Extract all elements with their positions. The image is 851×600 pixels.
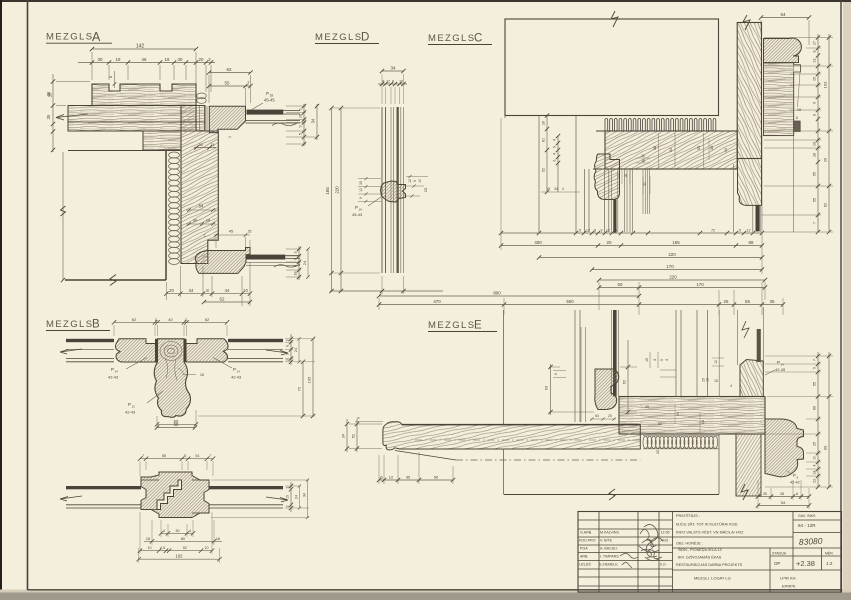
svg-text:12: 12 <box>606 229 610 233</box>
svg-text:30: 30 <box>98 57 103 62</box>
svg-text:62: 62 <box>622 379 627 384</box>
svg-text:C: C <box>474 33 482 45</box>
svg-text:V. BITE: V. BITE <box>600 539 613 543</box>
svg-text:34: 34 <box>724 148 728 152</box>
svg-text:24: 24 <box>295 495 299 499</box>
svg-text:55: 55 <box>813 382 817 386</box>
svg-text:34: 34 <box>189 288 194 293</box>
svg-text:34: 34 <box>676 412 680 416</box>
svg-text:103: 103 <box>823 81 828 88</box>
svg-text:10: 10 <box>243 288 248 293</box>
svg-text:I. TIMPARS: I. TIMPARS <box>600 555 619 559</box>
svg-text:80: 80 <box>181 537 185 541</box>
svg-text:42-45: 42-45 <box>775 367 786 372</box>
svg-text:8: 8 <box>109 76 113 78</box>
svg-text:23: 23 <box>813 479 817 483</box>
svg-text:10: 10 <box>205 546 209 550</box>
svg-text:400: 400 <box>534 240 542 245</box>
svg-text:50: 50 <box>174 422 179 427</box>
svg-text:9: 9 <box>294 265 298 267</box>
svg-text:6: 6 <box>553 159 557 161</box>
svg-text:9: 9 <box>813 102 817 104</box>
svg-text:42-43: 42-43 <box>231 375 242 380</box>
svg-text:28: 28 <box>780 492 784 496</box>
svg-text:15: 15 <box>286 495 290 499</box>
svg-text:ŠĶIN., PIONEŖU IELA 12: ŠĶIN., PIONEŖU IELA 12 <box>678 547 722 552</box>
svg-text:220: 220 <box>335 186 340 194</box>
svg-text:30: 30 <box>617 174 621 178</box>
svg-text:9: 9 <box>601 229 603 233</box>
svg-text:19: 19 <box>546 187 550 191</box>
svg-text:15: 15 <box>645 358 649 362</box>
svg-text:9: 9 <box>413 180 417 182</box>
svg-text:55: 55 <box>813 172 817 176</box>
svg-text:4: 4 <box>562 187 564 191</box>
svg-text:24: 24 <box>302 260 307 265</box>
svg-text:14: 14 <box>781 363 785 367</box>
svg-text:B: B <box>92 319 100 331</box>
svg-text:50: 50 <box>434 475 439 480</box>
svg-text:105: 105 <box>307 376 312 383</box>
svg-text:62: 62 <box>183 546 187 550</box>
svg-text:20: 20 <box>656 450 660 454</box>
svg-text:7: 7 <box>813 222 817 224</box>
svg-text:35: 35 <box>46 91 51 96</box>
svg-text:34: 34 <box>669 148 673 152</box>
svg-text:170: 170 <box>696 282 704 287</box>
svg-text:M.KALVINS: M.KALVINS <box>600 531 620 535</box>
svg-text:15: 15 <box>211 143 215 147</box>
svg-text:4: 4 <box>553 153 557 155</box>
svg-text:25: 25 <box>813 442 817 446</box>
svg-text:MEZGLS: MEZGLS <box>46 319 93 330</box>
svg-text:220: 220 <box>668 252 676 257</box>
svg-text:8: 8 <box>796 116 798 120</box>
svg-text:M.Ē/U ZĀT. TOT IK KULTŪRA/ KOD: M.Ē/U ZĀT. TOT IK KULTŪRA/ KOD. <box>676 523 738 527</box>
svg-text:165: 165 <box>325 187 330 195</box>
svg-text:45-43: 45-43 <box>352 212 363 217</box>
svg-text:4: 4 <box>553 139 557 141</box>
svg-text:7: 7 <box>209 454 211 458</box>
svg-text:25: 25 <box>724 299 729 304</box>
svg-text:4: 4 <box>730 384 732 388</box>
svg-text:55: 55 <box>225 81 230 86</box>
svg-text:8: 8 <box>594 229 596 233</box>
svg-text:20: 20 <box>423 187 428 192</box>
svg-text:30: 30 <box>763 492 767 496</box>
svg-text:72: 72 <box>297 386 302 391</box>
svg-text:15: 15 <box>813 77 817 81</box>
svg-text:62: 62 <box>205 317 210 322</box>
svg-text:GAV. /NKS: GAV. /NKS <box>798 514 816 518</box>
svg-text:13: 13 <box>701 420 705 424</box>
svg-text:4: 4 <box>163 529 165 533</box>
svg-text:8: 8 <box>383 80 385 84</box>
svg-text:A. BACULI: A. BACULI <box>600 547 617 551</box>
svg-text:8: 8 <box>813 114 817 116</box>
svg-text:9: 9 <box>359 197 363 199</box>
svg-text:54: 54 <box>781 500 786 505</box>
svg-text:MĒR.: MĒR. <box>825 552 834 556</box>
svg-text:MEZGLI. LOGAT LG: MEZGLI. LOGAT LG <box>694 576 731 581</box>
svg-text:3: 3 <box>286 487 290 489</box>
svg-text:54: 54 <box>595 414 599 418</box>
svg-text:51: 51 <box>195 454 199 458</box>
svg-text:19: 19 <box>359 208 363 212</box>
svg-text:18: 18 <box>624 174 628 178</box>
svg-text:50: 50 <box>199 143 203 147</box>
svg-text:5: 5 <box>579 229 581 233</box>
svg-text:4: 4 <box>813 464 817 466</box>
svg-text:3: 3 <box>286 505 290 507</box>
svg-text:27: 27 <box>813 41 817 45</box>
svg-text:220: 220 <box>669 275 677 280</box>
svg-text:4: 4 <box>653 359 657 361</box>
svg-text:6: 6 <box>357 417 361 419</box>
svg-text:10: 10 <box>299 114 303 118</box>
svg-text:3: 3 <box>286 359 290 361</box>
svg-text:55: 55 <box>745 299 750 304</box>
svg-text:5: 5 <box>813 367 817 369</box>
svg-text:18: 18 <box>706 378 710 382</box>
svg-text:MEZGLS: MEZGLS <box>315 32 362 43</box>
svg-text:MEZGLS: MEZGLS <box>46 32 93 43</box>
svg-text:88: 88 <box>749 240 754 245</box>
svg-text:1:2: 1:2 <box>826 561 833 566</box>
svg-text:8: 8 <box>286 345 290 347</box>
svg-text:45: 45 <box>645 405 649 409</box>
svg-text:EPRPK: EPRPK <box>782 584 796 589</box>
svg-text:5: 5 <box>184 454 186 458</box>
svg-text:15: 15 <box>714 379 718 383</box>
svg-text:UZLDŠ: UZLDŠ <box>579 562 591 567</box>
svg-text:34: 34 <box>342 434 346 438</box>
svg-text:14: 14 <box>115 370 119 374</box>
svg-text:OP: OP <box>774 561 780 566</box>
svg-text:30: 30 <box>176 529 180 533</box>
svg-text:10: 10 <box>148 546 152 550</box>
svg-text:18: 18 <box>165 57 170 62</box>
svg-text:102: 102 <box>176 554 184 559</box>
svg-text:45-45: 45-45 <box>264 98 275 103</box>
svg-text:31: 31 <box>813 59 817 63</box>
svg-text:6: 6 <box>294 258 298 260</box>
svg-text:S.ZIEMELE: S.ZIEMELE <box>599 563 618 567</box>
svg-text:30: 30 <box>193 219 197 223</box>
svg-text:52: 52 <box>658 422 662 426</box>
svg-text:46: 46 <box>142 57 147 62</box>
svg-text:KR/O VALSTS VĒST. VN MĀC/LA/ H: KR/O VALSTS VĒST. VN MĀC/LA/ HVZ <box>676 531 744 535</box>
svg-text:10: 10 <box>418 179 422 183</box>
svg-text:10: 10 <box>399 80 403 84</box>
svg-text:45: 45 <box>229 229 234 234</box>
svg-text:16: 16 <box>216 537 220 541</box>
svg-text:A: A <box>92 30 101 44</box>
svg-text:12: 12 <box>747 229 751 233</box>
svg-text:16: 16 <box>146 537 150 541</box>
svg-text:E: E <box>474 320 482 332</box>
svg-text:63: 63 <box>544 385 549 390</box>
svg-text:13: 13 <box>132 405 136 409</box>
svg-text:PGA: PGA <box>580 547 588 551</box>
svg-text:42-43: 42-43 <box>125 410 136 415</box>
svg-text:20: 20 <box>542 121 546 125</box>
svg-text:35: 35 <box>770 299 775 304</box>
svg-text:40: 40 <box>168 317 173 322</box>
svg-text:D: D <box>361 32 369 44</box>
svg-text:800: 800 <box>493 291 501 296</box>
svg-text:3: 3 <box>294 252 298 254</box>
svg-text:42-42: 42-42 <box>790 481 800 485</box>
svg-text:12: 12 <box>586 229 590 233</box>
svg-text:90: 90 <box>823 445 828 450</box>
svg-text:20: 20 <box>607 240 612 245</box>
svg-text:5: 5 <box>299 133 303 135</box>
svg-text:PR/ŪTĪTĀJS :: PR/ŪTĪTĀJS : <box>676 514 700 518</box>
svg-text:9: 9 <box>392 80 394 84</box>
svg-text:2: 2 <box>204 234 206 238</box>
svg-text:+2.38: +2.38 <box>796 559 815 568</box>
svg-text:29: 29 <box>813 142 817 146</box>
svg-text:20: 20 <box>169 288 174 293</box>
svg-text:165: 165 <box>672 240 680 245</box>
svg-text:7: 7 <box>813 359 817 361</box>
svg-text:18: 18 <box>206 219 210 223</box>
svg-text:MEZGLS: MEZGLS <box>428 320 475 331</box>
svg-text:18: 18 <box>641 159 645 163</box>
svg-text:G.ARB.: G.ARB. <box>580 531 592 535</box>
svg-text:5: 5 <box>660 359 664 361</box>
svg-text:12: 12 <box>408 179 412 183</box>
svg-text:84 - 12R: 84 - 12R <box>798 523 816 528</box>
svg-text:52: 52 <box>352 434 356 438</box>
svg-text:44: 44 <box>225 288 230 293</box>
svg-text:1: 1 <box>228 136 232 138</box>
svg-text:10: 10 <box>813 456 817 460</box>
svg-text:54: 54 <box>199 204 204 209</box>
svg-text:83080: 83080 <box>799 536 823 547</box>
svg-text:62: 62 <box>226 67 232 72</box>
svg-text:OBJ. HORĒJE :: OBJ. HORĒJE : <box>676 542 703 546</box>
svg-text:4: 4 <box>189 529 191 533</box>
svg-text:52: 52 <box>542 168 546 172</box>
svg-text:28: 28 <box>813 153 817 157</box>
svg-text:81: 81 <box>542 138 546 142</box>
svg-text:170: 170 <box>666 264 674 269</box>
svg-text:60: 60 <box>813 406 817 410</box>
svg-text:0.2–: 0.2– <box>660 563 667 567</box>
svg-text:7: 7 <box>142 454 144 458</box>
svg-text:9: 9 <box>286 353 290 355</box>
svg-text:ARB.: ARB. <box>580 555 588 559</box>
svg-text:8: 8 <box>554 373 558 375</box>
svg-text:55: 55 <box>697 146 701 150</box>
svg-text:8: 8 <box>813 51 817 53</box>
svg-text:3: 3 <box>286 339 290 341</box>
svg-text:18: 18 <box>813 471 817 475</box>
svg-text:12: 12 <box>714 360 718 364</box>
svg-text:24: 24 <box>294 348 298 352</box>
svg-text:34: 34 <box>311 118 316 123</box>
svg-text:62: 62 <box>824 203 828 207</box>
svg-text:MEZGLS: MEZGLS <box>428 33 475 44</box>
svg-text:25: 25 <box>248 230 252 234</box>
svg-text:9: 9 <box>757 229 759 233</box>
svg-text:29: 29 <box>824 158 828 162</box>
svg-text:6: 6 <box>796 492 798 496</box>
svg-text:30: 30 <box>643 182 647 186</box>
svg-text:72: 72 <box>711 229 715 233</box>
svg-text:55: 55 <box>813 198 817 202</box>
svg-text:42-43: 42-43 <box>108 375 119 380</box>
svg-text:38: 38 <box>710 146 714 150</box>
svg-text:142: 142 <box>136 44 145 50</box>
svg-text:20: 20 <box>199 57 204 62</box>
svg-text:STADIJA: STADIJA <box>772 552 787 556</box>
svg-text:RESTAURĀCIJAS DARBA PROJEKTS: RESTAURĀCIJAS DARBA PROJEKTS <box>676 563 743 567</box>
svg-text:50: 50 <box>618 282 623 287</box>
svg-text:9: 9 <box>299 126 303 128</box>
svg-text:500: 500 <box>566 299 574 304</box>
svg-text:35: 35 <box>46 114 51 119</box>
svg-text:55: 55 <box>162 454 166 458</box>
svg-text:16: 16 <box>200 373 204 377</box>
svg-text:34: 34 <box>554 187 558 191</box>
svg-text:12: 12 <box>386 80 390 84</box>
svg-text:4: 4 <box>665 359 669 361</box>
svg-text:4,5: 4,5 <box>160 546 165 550</box>
svg-text:35: 35 <box>406 475 411 480</box>
svg-text:38: 38 <box>653 146 657 150</box>
svg-text:34: 34 <box>390 66 396 71</box>
svg-text:30: 30 <box>178 57 183 62</box>
svg-text:12: 12 <box>389 475 394 480</box>
svg-text:18: 18 <box>116 57 121 62</box>
svg-text:3: 3 <box>299 109 303 111</box>
svg-text:54: 54 <box>780 12 786 17</box>
svg-text:30: 30 <box>641 154 645 158</box>
svg-text:470: 470 <box>433 299 441 304</box>
svg-text:5: 5 <box>615 229 617 233</box>
svg-text:62: 62 <box>220 297 225 302</box>
svg-text:5: 5 <box>739 229 741 233</box>
svg-text:9: 9 <box>553 146 557 148</box>
svg-text:KOD.PRO: KOD.PRO <box>579 539 596 543</box>
svg-text:12.95: 12.95 <box>661 531 670 535</box>
svg-text:34: 34 <box>303 493 307 497</box>
svg-text:BIV. DZĪVOJAMĀS ĒKAS: BIV. DZĪVOJAMĀS ĒKAS <box>678 556 722 560</box>
svg-text:18: 18 <box>294 272 298 276</box>
svg-text:35: 35 <box>359 181 363 185</box>
svg-text:12: 12 <box>359 188 363 192</box>
svg-text:LPIR KH: LPIR KH <box>780 576 796 581</box>
svg-text:62: 62 <box>132 317 137 322</box>
svg-text:14: 14 <box>237 370 241 374</box>
svg-text:20: 20 <box>608 414 612 418</box>
